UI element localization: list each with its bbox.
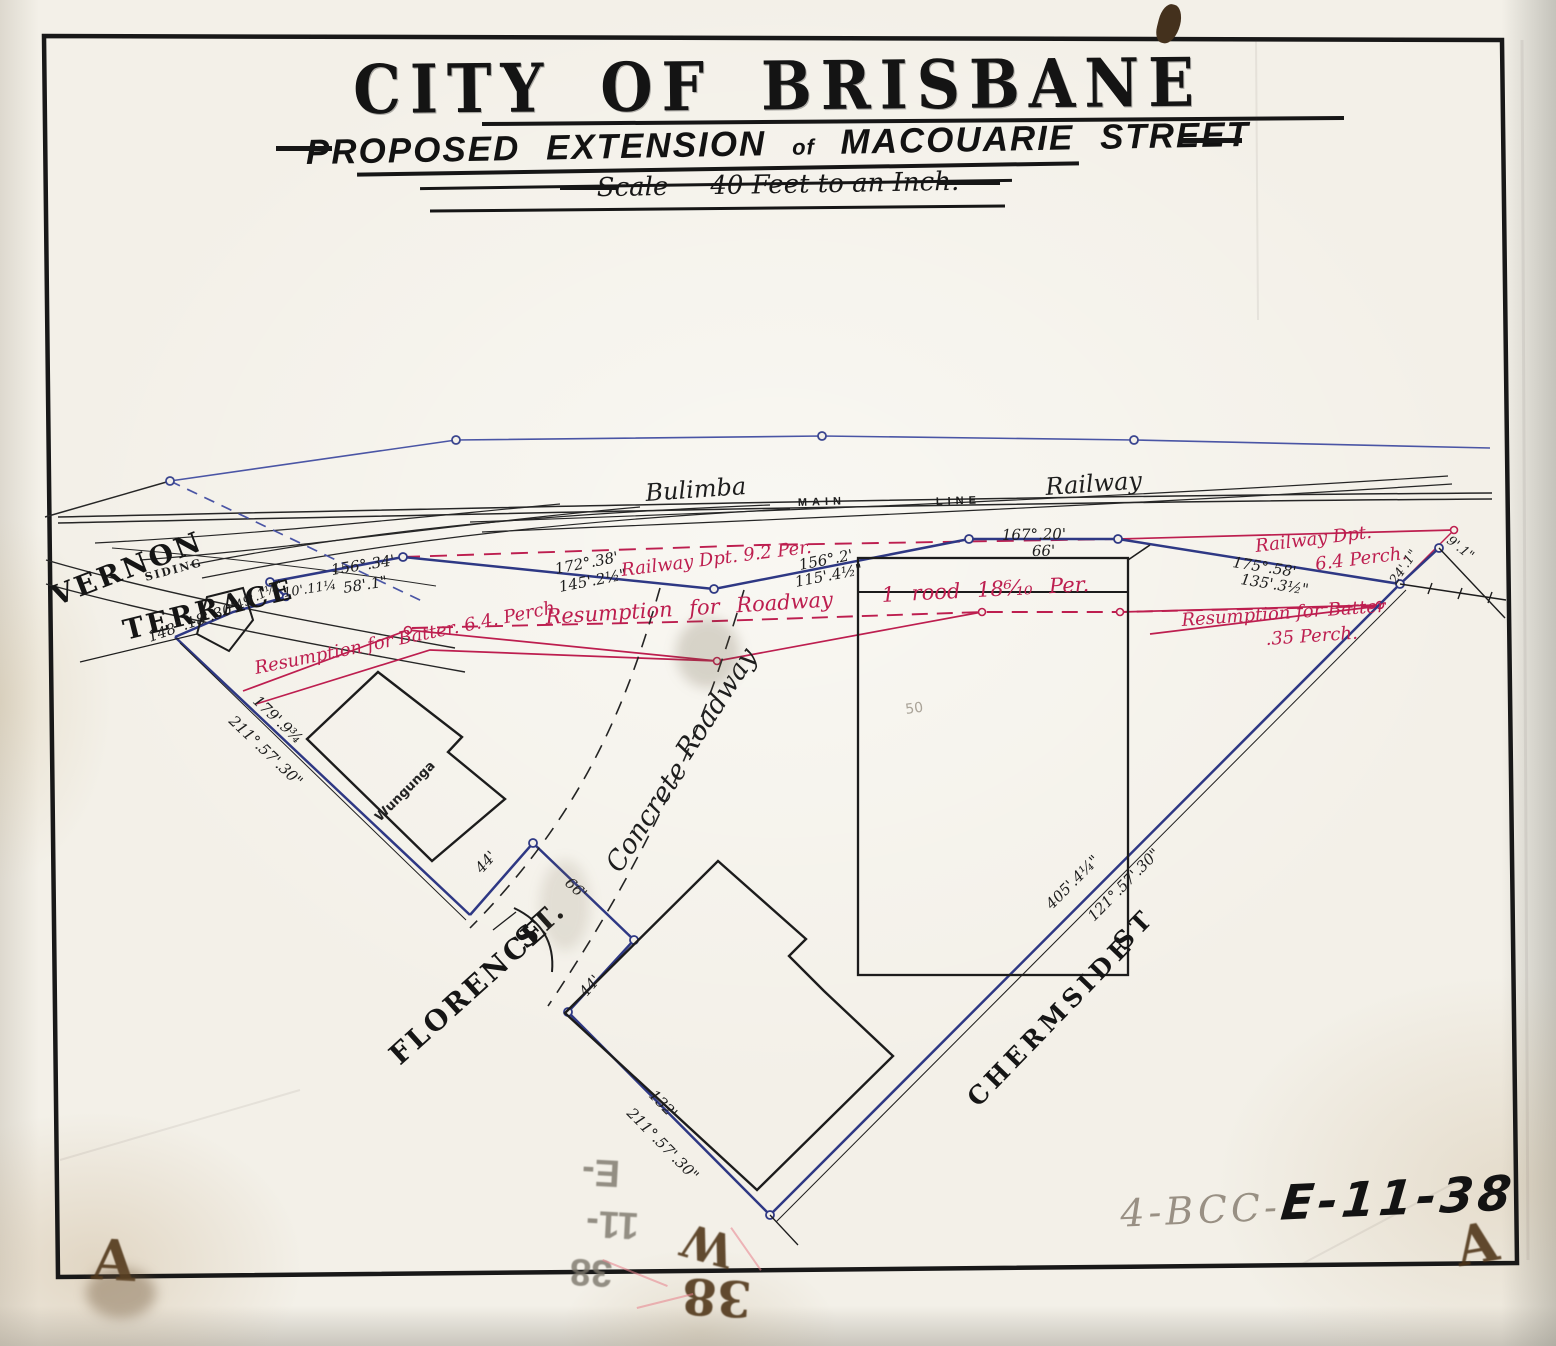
label-wungunga: Wungunga bbox=[372, 759, 438, 825]
bearing-121-57: 121°.57'.30" bbox=[1084, 845, 1164, 925]
ghost-stamp-11: 11- bbox=[585, 1201, 640, 1247]
ghost-stamp-e: E- bbox=[581, 1149, 621, 1194]
label-concrete: Concrete bbox=[600, 756, 694, 878]
note-resumption-roadway-area: 1 rood 18⁶⁄₁₀ Per. bbox=[881, 572, 1090, 607]
distance-66: 66' bbox=[1032, 542, 1056, 560]
wungunga-building-outline bbox=[307, 672, 505, 861]
scanned-survey-plan: { "title": { "city": "CITY OF BRISBANE",… bbox=[0, 0, 1556, 1346]
reference-prefix-pencil: 4-BCC- bbox=[1119, 1185, 1281, 1236]
label-railway: Railway bbox=[1043, 466, 1143, 501]
paper-stain bbox=[540, 860, 590, 950]
note-resumption-roadway: Resumption for Roadway bbox=[544, 587, 835, 629]
stamp-38-mark: 38 bbox=[681, 1266, 754, 1329]
note-batter-right-area: .35 Perch. bbox=[1265, 623, 1359, 650]
distance-9-1: 9'.1" bbox=[1444, 533, 1477, 563]
ink-smudge bbox=[676, 618, 740, 688]
faint-pencil-50: 50 bbox=[904, 700, 924, 718]
label-chermside: CHERMSIDE bbox=[961, 929, 1139, 1112]
stamp-smudge bbox=[86, 1268, 156, 1318]
distance-135-3: 135'.3½" bbox=[1239, 570, 1309, 598]
plan-drawing: VERNON TERRACE SIDING Bulimba MAIN LINE … bbox=[0, 0, 1556, 1346]
label-bulimba: Bulimba bbox=[643, 472, 747, 507]
label-main: MAIN bbox=[798, 495, 846, 509]
distance-44-a: 44' bbox=[471, 847, 500, 877]
note-batter-left: Resumption for Batter. 6.4. Perch. bbox=[252, 596, 563, 679]
label-line: LINE bbox=[936, 494, 981, 508]
ghost-stamp-38: 38 bbox=[569, 1249, 613, 1294]
